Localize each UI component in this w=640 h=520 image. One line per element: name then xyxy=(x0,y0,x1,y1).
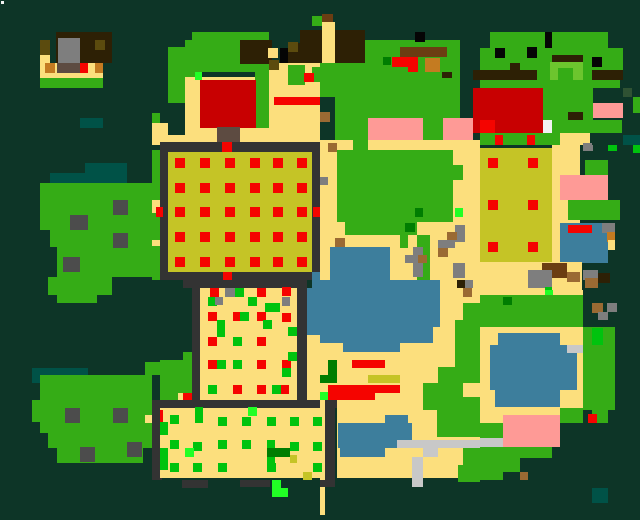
map-rect-gray45 xyxy=(65,408,80,423)
right-field-crop-dot xyxy=(488,158,498,168)
north-plot-crop-dot xyxy=(273,158,283,168)
north-plot-crop-dot xyxy=(225,183,235,193)
map-rect-black xyxy=(527,47,537,58)
map-rect-sand xyxy=(152,240,160,246)
map-rect-red xyxy=(233,385,242,394)
map-rect-red xyxy=(257,360,266,369)
map-rect-red xyxy=(257,288,266,297)
map-rect-gray80 xyxy=(282,297,290,306)
map-rect-blue xyxy=(343,343,400,352)
map-rect-green xyxy=(560,408,583,423)
map-rect-darkbrown xyxy=(592,70,623,80)
map-rect-green xyxy=(438,367,480,383)
map-rect-green xyxy=(463,303,480,320)
map-rect-red xyxy=(408,67,418,72)
map-rect-gray45 xyxy=(80,447,95,462)
map-rect-red xyxy=(352,360,385,368)
north-plot-crop-dot xyxy=(175,158,185,168)
map-rect-gray80 xyxy=(465,280,473,288)
map-rect-green xyxy=(288,65,305,85)
map-rect-red xyxy=(222,142,232,152)
map-rect-sand xyxy=(437,465,458,475)
map-rect-brightgreen xyxy=(233,360,242,369)
north-plot-crop-dot xyxy=(297,207,307,217)
map-rect-gray80 xyxy=(438,240,455,248)
map-rect-darkgreen xyxy=(267,448,290,457)
map-rect-red xyxy=(208,337,217,346)
map-rect-brightgreen xyxy=(170,440,179,449)
map-rect-black xyxy=(545,32,552,48)
map-rect-green xyxy=(255,72,269,128)
map-rect-red xyxy=(223,272,232,280)
map-rect-brightgreen xyxy=(313,463,322,472)
map-rect-brightgreen xyxy=(170,463,179,472)
map-rect-teal xyxy=(85,163,127,173)
big-pond xyxy=(320,280,440,327)
map-rect-olive xyxy=(368,375,400,383)
map-rect-midbrown xyxy=(400,47,447,57)
map-rect-darkbrown xyxy=(335,30,365,63)
map-rect-graylight xyxy=(480,438,503,447)
pink-building-south xyxy=(503,415,560,447)
map-rect-moss xyxy=(623,88,632,97)
map-rect-border xyxy=(240,480,270,487)
map-rect-brightgreen xyxy=(240,312,249,321)
map-rect-green xyxy=(145,362,160,375)
map-rect-brightgreen xyxy=(170,415,179,424)
map-rect-brown xyxy=(567,272,580,282)
map-rect-green xyxy=(543,88,552,120)
north-plot-crop-dot xyxy=(200,257,210,267)
map-rect-brightgreen xyxy=(242,417,251,426)
map-rect-brightgreen xyxy=(592,328,603,345)
map-rect-green xyxy=(453,165,463,180)
map-rect-red xyxy=(313,207,320,217)
map-rect-gray45 xyxy=(70,215,88,230)
map-rect-green xyxy=(480,472,503,480)
map-rect-green xyxy=(633,97,640,113)
right-field-crop-dot xyxy=(488,200,498,210)
north-plot-crop-dot xyxy=(297,183,307,193)
north-plot-crop-dot xyxy=(250,158,260,168)
map-rect-lime xyxy=(272,488,288,497)
west-grove xyxy=(40,183,152,230)
map-rect-green xyxy=(552,120,622,133)
map-rect-brightgreen xyxy=(195,407,203,423)
north-plot-crop-dot xyxy=(175,207,185,217)
map-rect-red xyxy=(160,410,163,422)
north-plot-crop-dot xyxy=(273,232,283,242)
map-rect-brown xyxy=(585,278,598,288)
north-plot-crop-dot xyxy=(175,232,185,242)
map-rect-pink xyxy=(443,118,473,140)
map-rect-teal xyxy=(592,488,608,503)
central-meadow xyxy=(337,150,453,222)
map-rect-red xyxy=(588,414,597,423)
map-rect-red xyxy=(328,385,400,393)
map-rect-red xyxy=(282,287,291,296)
map-rect-gray80 xyxy=(225,288,235,297)
north-plot-crop-dot xyxy=(250,183,260,193)
map-rect-green xyxy=(568,200,620,220)
map-rect-red xyxy=(568,225,592,233)
southwest-grove xyxy=(40,375,152,400)
map-rect-red xyxy=(304,73,314,82)
map-rect-green xyxy=(32,400,152,422)
map-rect-brown xyxy=(320,112,330,122)
map-rect-green xyxy=(400,235,408,248)
map-rect-brightgreen xyxy=(272,385,281,394)
map-rect-green xyxy=(437,410,480,437)
map-rect-border xyxy=(320,480,335,487)
map-rect-green xyxy=(463,448,480,465)
map-rect-red xyxy=(183,393,192,400)
map-rect-brightgreen xyxy=(218,440,227,449)
map-rect-teal xyxy=(80,118,103,128)
map-rect-green xyxy=(335,97,365,140)
map-rect-oliveDark xyxy=(269,60,279,70)
map-rect-green xyxy=(353,140,368,150)
map-rect-sand xyxy=(145,415,152,423)
map-rect-red xyxy=(274,97,320,105)
map-rect-green xyxy=(183,352,192,360)
map-rect-red xyxy=(480,120,495,133)
map-rect-darkbrown xyxy=(300,30,322,63)
map-rect-red xyxy=(257,337,266,346)
map-rect-green xyxy=(312,16,322,26)
map-rect-black xyxy=(415,32,425,42)
map-rect-brightgreen xyxy=(267,463,276,472)
map-rect-green xyxy=(480,423,503,438)
map-rect-lime xyxy=(248,407,257,416)
map-rect-olive xyxy=(303,472,312,480)
red-building-left xyxy=(200,80,256,128)
map-rect-brightgreen xyxy=(193,463,202,472)
map-rect-darkbrown xyxy=(442,72,452,78)
map-rect-lime xyxy=(455,208,463,217)
north-plot-crop-dot xyxy=(200,158,210,168)
map-rect-graylight xyxy=(423,448,438,457)
map-rect-oliveDark xyxy=(95,40,105,50)
map-rect-green xyxy=(480,295,583,327)
map-rect-red xyxy=(80,63,88,73)
map-rect-graylight xyxy=(412,457,423,487)
map-rect-sand xyxy=(268,48,278,58)
house-lawn xyxy=(40,78,103,88)
north-plot-crop-dot xyxy=(250,207,260,217)
map-rect-sand xyxy=(463,383,480,397)
north-plot-crop-dot xyxy=(297,257,307,267)
house-door xyxy=(57,63,80,73)
map-rect-gray80 xyxy=(607,303,617,312)
map-rect-green xyxy=(50,230,152,247)
map-rect-border xyxy=(182,480,208,488)
map-rect-brightgreen xyxy=(160,448,168,470)
north-plot-field xyxy=(168,152,312,272)
map-rect-green xyxy=(480,133,560,145)
map-rect-green xyxy=(320,63,365,97)
map-rect-gray45 xyxy=(63,257,80,272)
map-rect-green xyxy=(455,320,480,367)
map-rect-brightgreen xyxy=(248,297,257,306)
map-rect-brightgreen xyxy=(218,463,227,472)
north-plot-crop-dot xyxy=(200,207,210,217)
stone-path xyxy=(397,440,480,448)
north-plot-crop-dot xyxy=(273,257,283,267)
north-plot-crop-dot xyxy=(200,232,210,242)
map-rect-gray80 xyxy=(598,312,608,320)
map-rect-brown xyxy=(328,143,337,152)
map-rect-lime xyxy=(185,448,194,457)
map-rect-brightgreen xyxy=(265,303,280,312)
north-plot-crop-dot xyxy=(250,232,260,242)
map-rect-darkgreen xyxy=(503,297,512,305)
right-field-crop-dot xyxy=(528,242,538,252)
map-rect-brightgreen xyxy=(217,320,225,337)
map-rect-sand xyxy=(307,335,320,400)
map-rect-gray45 xyxy=(113,200,128,215)
map-rect-oliveDark xyxy=(40,40,50,55)
right-field-crop-dot xyxy=(528,158,538,168)
map-rect-green xyxy=(585,160,608,175)
map-rect-brown xyxy=(447,232,457,240)
map-rect-brightgreen xyxy=(217,360,226,369)
map-rect-blue xyxy=(385,415,408,423)
map-rect-red xyxy=(495,135,503,145)
map-rect-red xyxy=(282,313,291,322)
map-rect-darkgreen xyxy=(405,223,415,232)
map-rect-darkgreen xyxy=(320,375,337,383)
house-chimney xyxy=(58,38,80,63)
map-rect-lime xyxy=(545,290,553,295)
map-rect-brightgreen xyxy=(263,320,272,329)
pink-building-topright xyxy=(593,103,623,118)
map-rect-blue xyxy=(340,448,385,457)
map-rect-brightgreen xyxy=(313,442,322,451)
map-rect-red xyxy=(208,360,217,369)
map-rect-red xyxy=(210,288,219,297)
map-rect-lime xyxy=(195,72,202,80)
north-path xyxy=(322,22,335,63)
north-plot-crop-dot xyxy=(297,158,307,168)
map-rect-green xyxy=(152,113,160,123)
map-rect-sand xyxy=(40,55,50,63)
right-crop-field xyxy=(470,148,552,262)
north-plot-crop-dot xyxy=(225,232,235,242)
north-plot-crop-dot xyxy=(297,232,307,242)
map-rect-brightgreen xyxy=(235,288,244,297)
map-rect-blue xyxy=(330,247,390,280)
map-rect-green xyxy=(480,458,520,472)
map-rect-darkbrown xyxy=(480,70,537,80)
east-lake xyxy=(490,345,577,390)
map-rect-green xyxy=(458,465,480,482)
map-rect-brightgreen xyxy=(313,417,322,426)
map-rect-oliveDark xyxy=(288,42,298,52)
map-rect-darkbrown xyxy=(473,70,480,80)
map-rect-darkbrown xyxy=(598,273,610,283)
map-rect-blue xyxy=(307,288,320,335)
map-rect-gray80 xyxy=(583,145,593,151)
map-rect-gray45 xyxy=(113,233,128,248)
map-rect-gray80 xyxy=(453,263,465,278)
south-plot-fence xyxy=(152,400,337,408)
map-rect-darkgreen xyxy=(383,57,391,65)
map-rect-brightgreen xyxy=(208,385,217,394)
map-rect-brown xyxy=(418,255,427,263)
map-rect-red xyxy=(392,57,418,67)
map-rect-teal xyxy=(32,368,40,383)
map-rect-black xyxy=(592,57,602,67)
map-origin-dot xyxy=(1,1,4,4)
pink-building-right xyxy=(560,175,608,200)
map-rect-green xyxy=(57,295,97,303)
map-rect-lime xyxy=(320,392,328,400)
south-path-exit xyxy=(320,487,325,515)
right-field-crop-dot xyxy=(528,200,538,210)
map-rect-brightgreen xyxy=(218,417,227,426)
map-rect-green xyxy=(48,277,112,295)
map-rect-red xyxy=(156,207,163,217)
map-rect-green xyxy=(40,422,152,433)
map-rect-blue xyxy=(320,327,433,343)
map-rect-brightgreen xyxy=(160,422,168,435)
map-rect-black xyxy=(495,48,505,58)
right-field-crop-dot xyxy=(488,242,498,252)
map-rect-darkgreen xyxy=(415,208,423,217)
map-rect-brightgreen xyxy=(290,442,299,451)
map-rect-gray80 xyxy=(320,177,328,185)
north-plot-crop-dot xyxy=(200,183,210,193)
map-rect-brightgreen xyxy=(288,352,297,361)
map-rect-red xyxy=(257,385,266,394)
map-rect-brightgreen xyxy=(193,442,202,451)
map-rect-red xyxy=(280,385,289,394)
map-rect-orangebrown xyxy=(45,63,55,73)
map-rect-blue xyxy=(498,333,560,345)
map-rect-red xyxy=(208,312,217,321)
map-rect-darkbrown xyxy=(457,280,465,288)
map-rect-teal xyxy=(623,135,640,145)
map-rect-midbrown xyxy=(322,14,333,22)
map-rect-green xyxy=(168,47,185,103)
map-rect-green xyxy=(480,80,620,88)
map-rect-gray45 xyxy=(113,408,128,423)
north-plot-crop-dot xyxy=(250,257,260,267)
map-rect-gray45 xyxy=(127,442,142,457)
map-rect-gray80 xyxy=(528,270,552,288)
map-rect-graylight xyxy=(567,345,583,353)
map-rect-brightgreen xyxy=(288,327,297,336)
map-rect-sand xyxy=(438,448,463,465)
north-plot-crop-dot xyxy=(273,207,283,217)
north-plot-crop-dot xyxy=(175,183,185,193)
map-rect-brightgreen xyxy=(267,417,276,426)
map-rect-brown xyxy=(520,472,528,480)
map-rect-brown xyxy=(438,248,448,257)
map-rect-orangebrown xyxy=(425,58,440,72)
map-rect-green xyxy=(480,447,552,458)
north-plot-crop-dot xyxy=(225,158,235,168)
map-rect-blue xyxy=(495,390,560,407)
map-rect-teal xyxy=(50,173,127,183)
map-rect-red xyxy=(328,393,375,400)
map-rect-brightgreen xyxy=(233,337,242,346)
map-rect-brightgreen xyxy=(282,368,291,377)
map-rect-green xyxy=(552,88,593,103)
map-rect-red xyxy=(527,135,535,145)
north-plot-crop-dot xyxy=(225,207,235,217)
map-rect-brightgreen xyxy=(290,417,299,426)
map-rect-green xyxy=(598,400,608,408)
map-rect-brown xyxy=(463,288,472,297)
map-rect-sand xyxy=(608,240,615,250)
north-plot-crop-dot xyxy=(273,183,283,193)
map-rect-gray80 xyxy=(405,255,413,263)
world-map[interactable] xyxy=(0,0,640,520)
map-rect-blue xyxy=(312,272,320,288)
north-plot-crop-dot xyxy=(175,257,185,267)
map-rect-brightgreen xyxy=(242,440,251,449)
map-rect-brightgreen xyxy=(608,145,617,151)
map-rect-doorbrown xyxy=(217,127,240,143)
map-rect-olive xyxy=(290,455,297,463)
map-rect-gray80 xyxy=(215,297,223,305)
map-rect-brightgreen xyxy=(633,145,640,153)
map-rect-orangebrown xyxy=(95,63,103,73)
north-plot-crop-dot xyxy=(225,257,235,267)
